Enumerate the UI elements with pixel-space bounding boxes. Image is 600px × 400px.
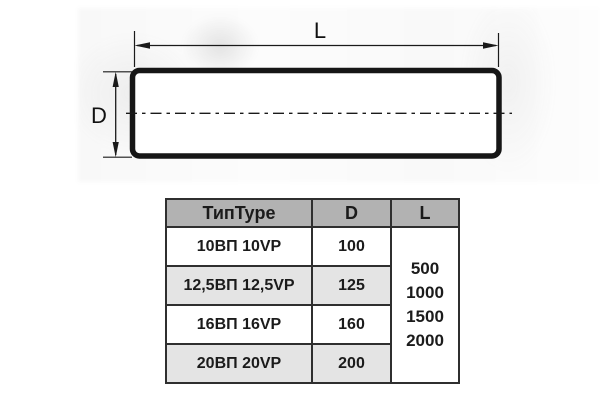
diameter-dimension (103, 72, 132, 157)
d-cell: 200 (312, 344, 391, 383)
col-header-l: L (391, 199, 459, 227)
duct-dimension-diagram: L D (0, 0, 600, 195)
col-header-d: D (312, 199, 391, 227)
d-cell: 100 (312, 227, 391, 266)
dimensions-table: ТипType D L 10ВП 10VP 100 500 1000 1500 … (165, 198, 460, 384)
d-cell: 125 (312, 266, 391, 305)
arrowhead-left-icon (135, 42, 151, 48)
type-cell: 16ВП 16VP (166, 305, 312, 344)
diameter-dimension-label: D (91, 103, 107, 128)
col-header-type: ТипType (166, 199, 312, 227)
arrowhead-down-icon (113, 142, 119, 157)
l-value: 500 (392, 257, 458, 281)
table-row: 10ВП 10VP 100 500 1000 1500 2000 (166, 227, 459, 266)
l-value: 2000 (392, 329, 458, 353)
d-cell: 160 (312, 305, 391, 344)
arrowhead-right-icon (483, 42, 499, 48)
duct-spec-sheet: L D ТипType D L 10ВП 10VP 10 (0, 0, 600, 400)
l-value: 1500 (392, 305, 458, 329)
l-values-cell: 500 1000 1500 2000 (391, 227, 459, 383)
type-cell: 20ВП 20VP (166, 344, 312, 383)
table-header-row: ТипType D L (166, 199, 459, 227)
type-cell: 12,5ВП 12,5VP (166, 266, 312, 305)
l-value: 1000 (392, 281, 458, 305)
arrowhead-up-icon (113, 72, 119, 87)
length-dimension-label: L (314, 18, 326, 43)
type-cell: 10ВП 10VP (166, 227, 312, 266)
